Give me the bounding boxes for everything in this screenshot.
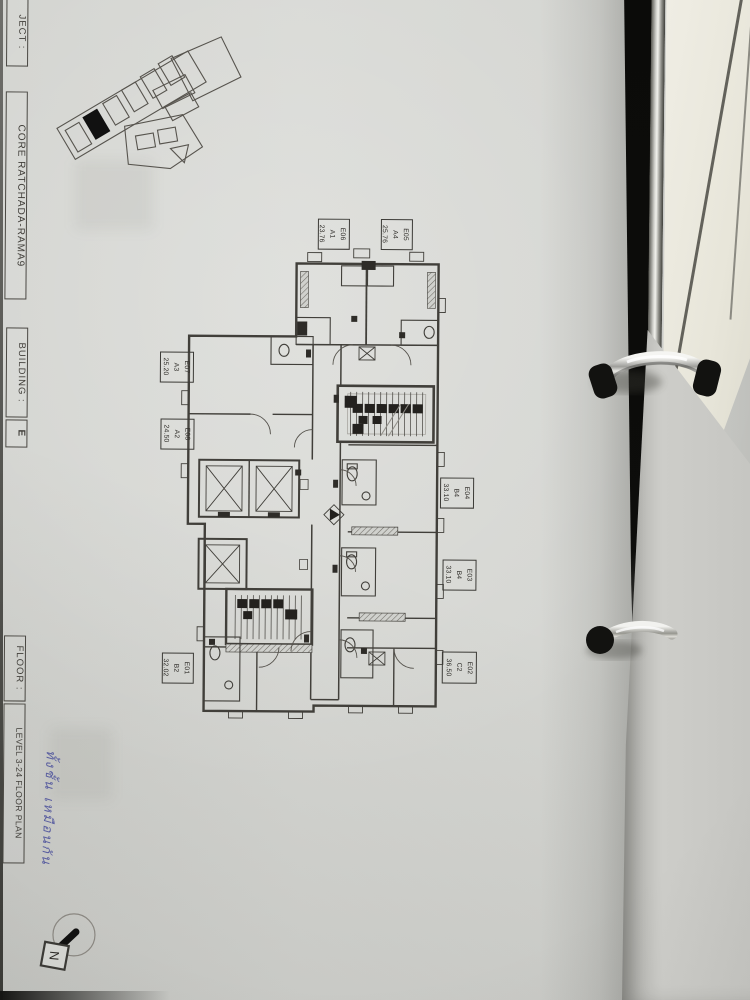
stair-scissor bbox=[337, 386, 433, 443]
ledge-hatch bbox=[352, 527, 398, 535]
site-key-map bbox=[32, 18, 243, 189]
ring-grommet bbox=[586, 626, 614, 654]
highlighted-building-marker bbox=[83, 109, 109, 139]
title-block-building-label: BUILDING : bbox=[6, 327, 29, 417]
binder-ring-top bbox=[583, 318, 723, 410]
title-block-project-label: JECT : bbox=[6, 0, 28, 67]
elevator-single bbox=[198, 539, 307, 590]
unit-label-E02: E02 C2 36.50 bbox=[442, 651, 477, 683]
compass-n-label: N bbox=[46, 950, 62, 961]
unit-e05-e06-walls bbox=[296, 263, 439, 345]
unit-label-E05: E05 A4 25.76 bbox=[381, 219, 413, 250]
site-block-square bbox=[171, 37, 241, 101]
unit-label-E06: E06 A1 23.76 bbox=[318, 219, 350, 250]
title-block-project-name: CORE RATCHADA-RAMA9 bbox=[4, 91, 27, 299]
north-compass: N bbox=[32, 891, 133, 999]
wall-block bbox=[362, 261, 376, 270]
unit-label-E03: E03 B4 33.10 bbox=[442, 559, 476, 590]
elevator-core bbox=[199, 460, 308, 518]
title-block-floor-label: FLOOR : bbox=[4, 635, 26, 701]
handwritten-note: ทั้งชั้น เหมือนกัน bbox=[15, 749, 61, 901]
photo-left-edge bbox=[0, 0, 3, 1000]
balcony-rail bbox=[300, 271, 308, 307]
ledge-hatch bbox=[359, 613, 405, 621]
unit-label-E08: E08 A2 24.50 bbox=[160, 419, 194, 450]
photo-bottom-edge bbox=[0, 991, 170, 1000]
binder-ring-bottom bbox=[580, 598, 685, 666]
stair-bottom bbox=[226, 589, 312, 653]
unit-label-E04: E04 B4 33.10 bbox=[440, 477, 474, 508]
binder-photo: JECT : CORE RATCHADA-RAMA9 BUILDING : E … bbox=[0, 0, 750, 1000]
balcony-rail bbox=[427, 272, 435, 308]
title-block-building-value: E bbox=[5, 419, 27, 447]
unit-label-E01: E01 B2 32.02 bbox=[162, 653, 194, 684]
unit-label-E07: E07 A3 25.20 bbox=[160, 351, 194, 382]
site-building-row bbox=[55, 48, 206, 160]
